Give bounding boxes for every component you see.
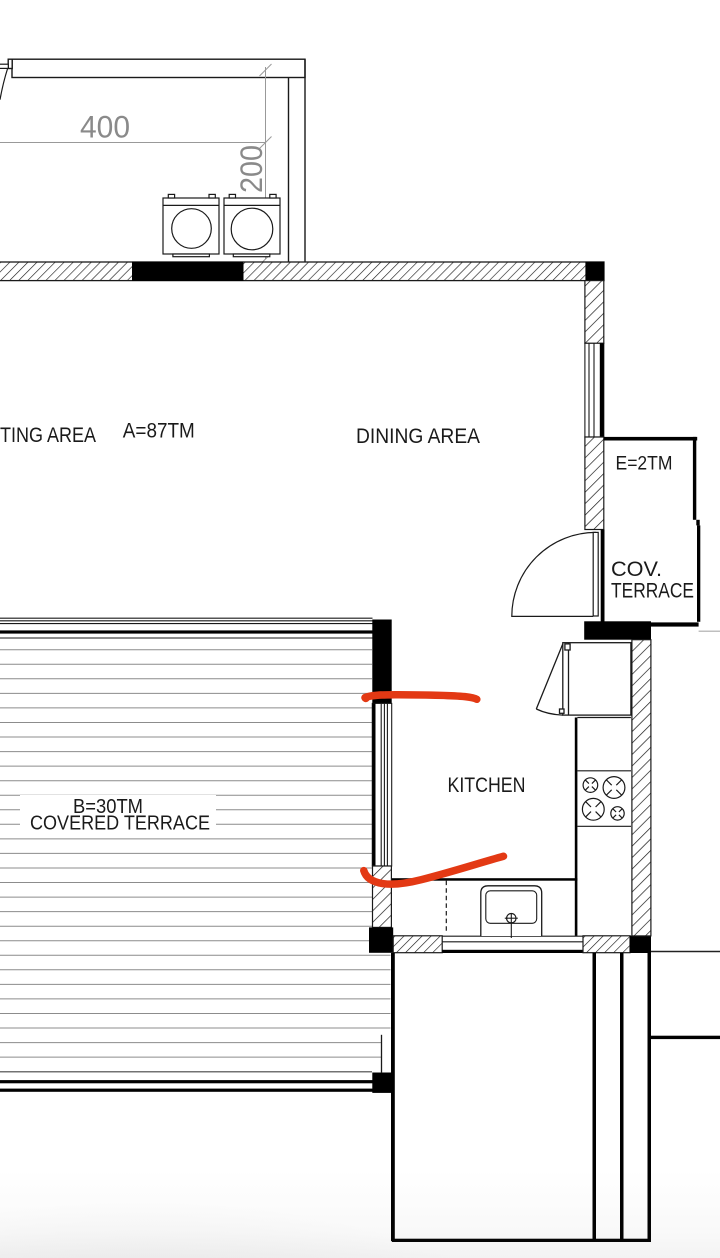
svg-text:E=2TM: E=2TM bbox=[616, 454, 673, 475]
svg-text:200: 200 bbox=[233, 145, 269, 193]
svg-text:COVERED TERRACE: COVERED TERRACE bbox=[30, 813, 210, 835]
svg-text:KITCHEN: KITCHEN bbox=[448, 774, 526, 797]
svg-text:TING AREA: TING AREA bbox=[0, 424, 96, 447]
svg-text:TERRACE: TERRACE bbox=[611, 580, 694, 603]
svg-text:A=87TM: A=87TM bbox=[123, 420, 195, 443]
svg-text:COV.: COV. bbox=[611, 558, 662, 581]
svg-text:DINING AREA: DINING AREA bbox=[356, 425, 480, 448]
svg-text:400: 400 bbox=[80, 109, 130, 145]
